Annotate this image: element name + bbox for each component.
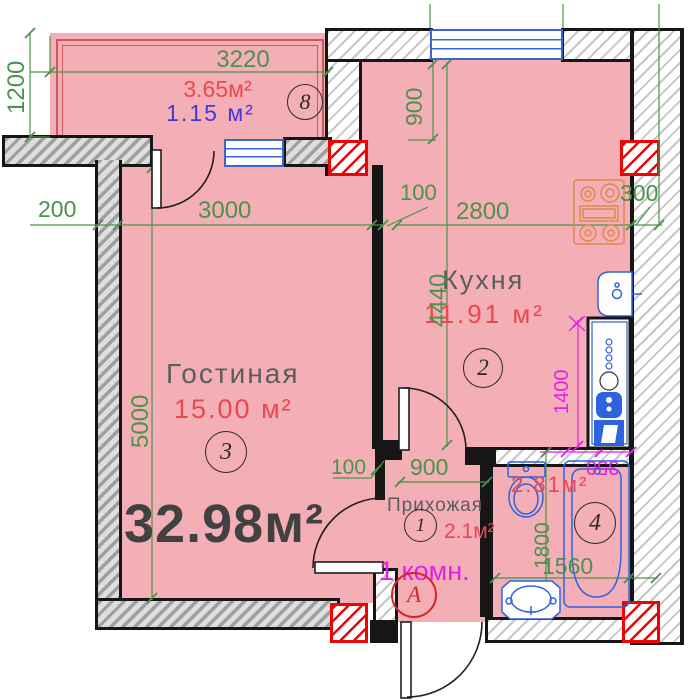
dim-right-wall: 300 [620,181,658,205]
living-room-label: Гостиная [166,359,300,388]
balcony-area: 3.65м² [155,77,280,101]
section-badge: А [391,572,437,618]
dim-balcony-width: 3220 [168,47,318,72]
dim-appliance-zone: 1400 [552,358,573,414]
living-room-area: 15.00 м² [174,395,293,423]
dim-living-depth: 5000 [128,358,153,448]
bathroom-number-badge: 4 [574,502,616,544]
kitchen-door-leaf [399,388,409,450]
dim-hall-width: 900 [410,455,448,479]
kitchen-label: Кухня [442,266,524,294]
door-symbols [152,150,482,698]
washbasin-icon [502,581,560,619]
total-area: 32.98м² [124,496,324,553]
dim-kitchen-width: 2800 [456,199,509,224]
kitchen-number-badge: 2 [463,348,503,388]
entry-door-leaf [401,622,411,698]
dim-hall-partition: 100 [331,457,366,479]
hallway-label: Прихожая [387,496,483,516]
living-door-leaf [315,562,383,573]
dim-kitchen-depth: 4440 [426,243,451,327]
balcony-number-badge: 8 [287,84,323,120]
plan-overlay [0,0,688,700]
balcony-area-secondary: 1.15 м² [148,101,273,125]
green-dimension-lines [25,4,664,611]
hallway-area: 2.1м² [444,521,495,543]
dim-kitchen-window-offset: 900 [402,74,426,126]
dim-balcony-depth: 1200 [4,52,29,114]
stove-icon [574,180,624,244]
dim-tub-offset: 350 [586,456,619,477]
hallway-number-badge: 1 [404,509,437,542]
dim-bathroom-width: 1560 [542,554,593,578]
entry-door-arc [407,622,482,697]
kitchen-sink-icon [598,272,642,316]
living-room-number-badge: 3 [205,431,247,473]
kitchen-door-arc [404,388,466,450]
floor-plan: 3220 1200 3.65м² 1.15 м² 8 200 3000 100 … [0,0,688,700]
dim-partition-thickness: 100 [400,181,437,204]
dim-living-width: 3000 [198,198,251,223]
fridge-icon [588,318,630,448]
balcony-door-leaf [152,150,161,208]
dim-left-offset: 200 [38,197,76,221]
